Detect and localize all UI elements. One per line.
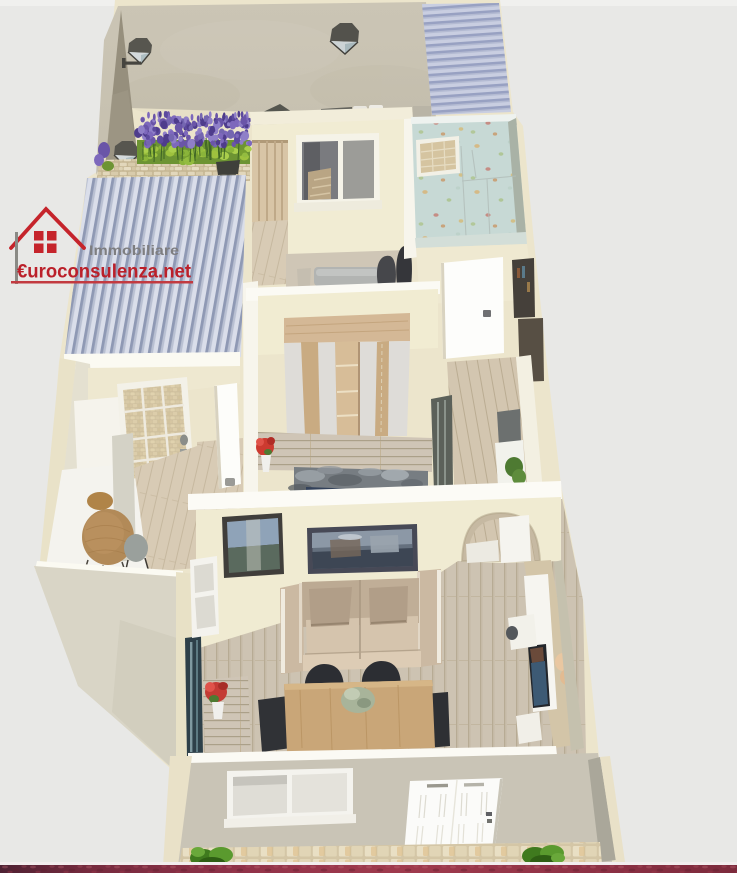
svg-text:Immobiliare: Immobiliare [89, 242, 179, 258]
svg-text:€uroconsulenza.net: €uroconsulenza.net [17, 261, 191, 283]
